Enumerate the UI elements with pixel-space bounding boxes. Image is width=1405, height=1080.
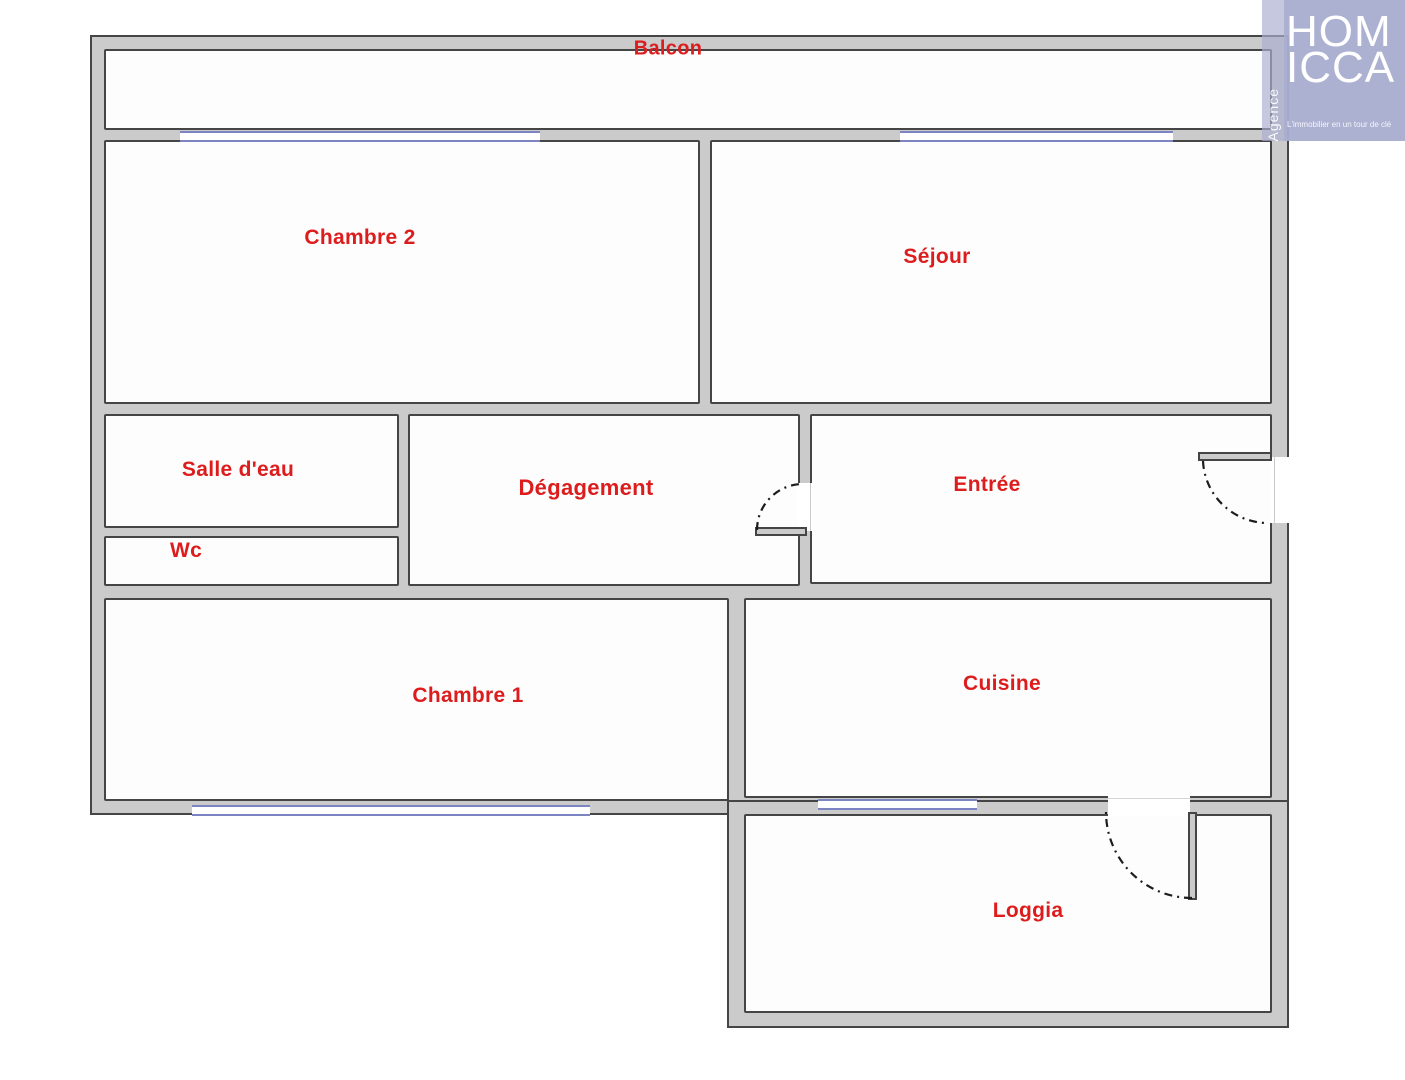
label-entree: Entrée	[953, 473, 1020, 497]
floor-plan: Balcon Chambre 2 Séjour Salle d'eau Déga…	[0, 0, 1405, 1080]
label-loggia: Loggia	[993, 899, 1064, 923]
label-balcon: Balcon	[634, 38, 702, 61]
room-cuisine	[744, 598, 1272, 798]
label-chambre1: Chambre 1	[412, 684, 523, 708]
agency-side-label: Agence	[1265, 78, 1281, 141]
label-degagement: Dégagement	[518, 475, 653, 501]
window-chambre1	[192, 805, 590, 816]
door-leaf-degagement	[755, 527, 807, 536]
window-chambre2	[180, 131, 540, 142]
agency-tagline: L'immobilier en un tour de clé	[1287, 120, 1391, 129]
door-leaf-loggia	[1188, 812, 1197, 900]
room-balcon	[104, 49, 1272, 130]
agency-brand-text: HOM ICCA	[1286, 14, 1395, 86]
agency-brand-line2: ICCA	[1286, 50, 1395, 86]
door-opening-loggia	[1108, 796, 1190, 816]
label-salle-eau: Salle d'eau	[182, 458, 294, 482]
label-wc: Wc	[170, 539, 202, 563]
door-threshold-line	[810, 483, 811, 531]
window-sejour	[900, 131, 1173, 142]
door-leaf-entree	[1198, 452, 1272, 461]
label-cuisine: Cuisine	[963, 672, 1041, 696]
room-chambre2	[104, 140, 700, 404]
door-threshold-line	[1108, 798, 1190, 799]
label-sejour: Séjour	[903, 245, 970, 269]
window-cuisine	[818, 799, 977, 810]
agency-logo: HOM ICCA L'immobilier en un tour de clé …	[1262, 0, 1405, 141]
agency-logo-panel: HOM ICCA L'immobilier en un tour de clé	[1284, 0, 1405, 141]
door-threshold-line	[1274, 457, 1275, 523]
agency-side-strip: Agence	[1262, 0, 1284, 141]
label-chambre2: Chambre 2	[304, 226, 415, 250]
room-entree	[810, 414, 1272, 584]
room-wc	[104, 536, 399, 586]
room-sejour	[710, 140, 1272, 404]
